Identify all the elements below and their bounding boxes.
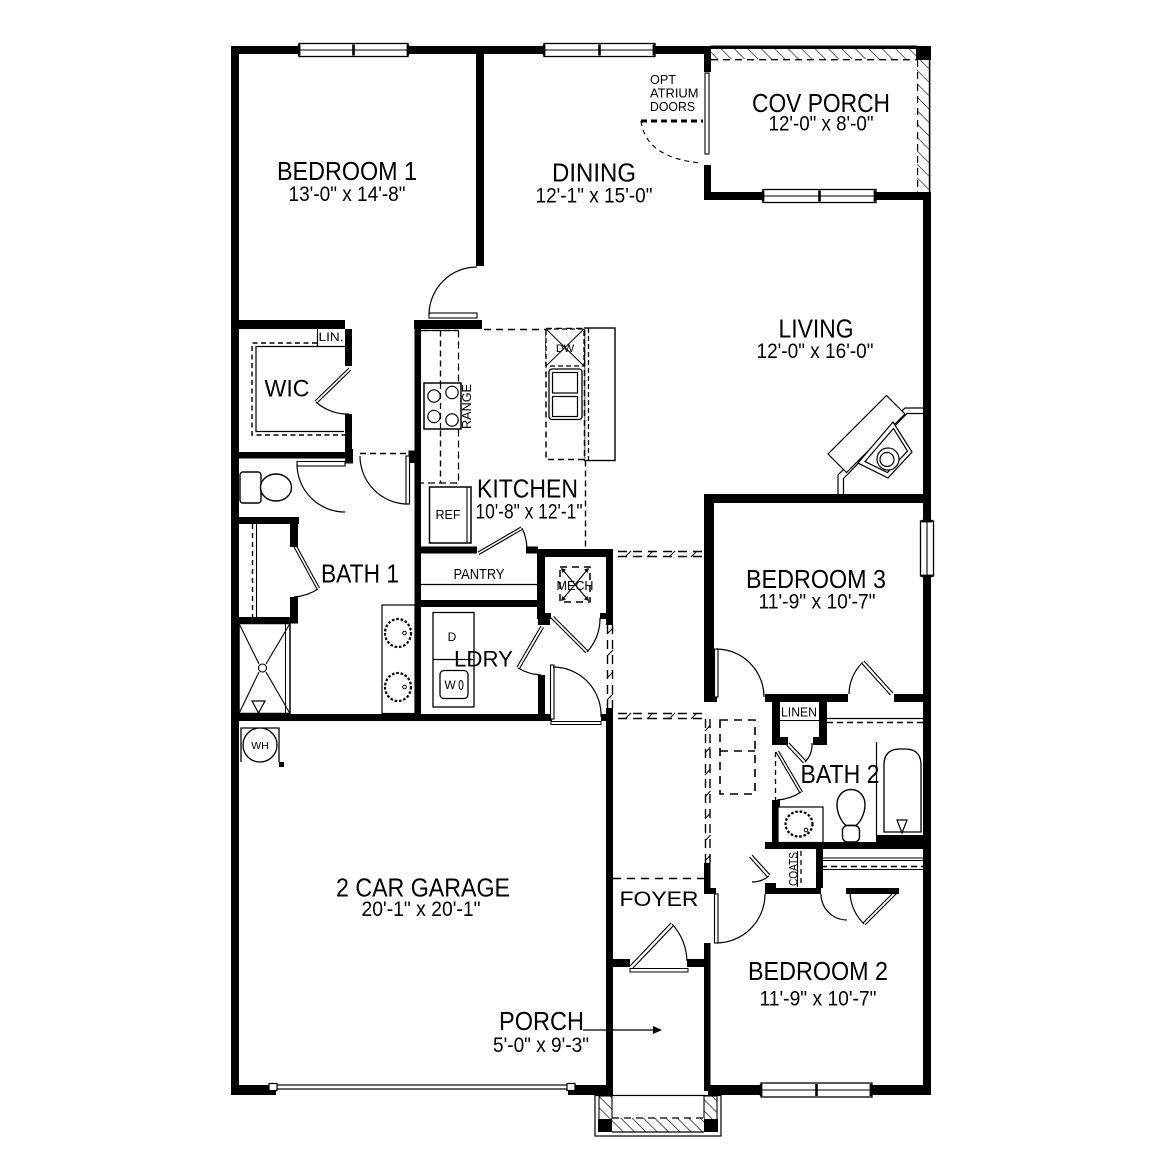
svg-text:PANTRY: PANTRY bbox=[454, 566, 505, 583]
svg-text:12'-0" x 8'-0": 12'-0" x 8'-0" bbox=[769, 112, 874, 136]
svg-text:COATS: COATS bbox=[787, 852, 801, 886]
svg-text:D: D bbox=[448, 630, 457, 644]
svg-text:PORCH: PORCH bbox=[499, 1006, 584, 1036]
svg-text:12'-0" x 16'-0": 12'-0" x 16'-0" bbox=[757, 339, 874, 363]
svg-text:20'-1" x 20'-1": 20'-1" x 20'-1" bbox=[362, 897, 481, 921]
svg-text:WH: WH bbox=[251, 740, 269, 752]
svg-text:12'-1" x 15'-0": 12'-1" x 15'-0" bbox=[536, 184, 653, 208]
svg-text:MECH: MECH bbox=[557, 579, 594, 593]
svg-text:LIN.: LIN. bbox=[319, 330, 344, 344]
svg-text:FOYER: FOYER bbox=[620, 888, 699, 911]
svg-text:10'-8" x 12'-1": 10'-8" x 12'-1" bbox=[476, 500, 583, 524]
svg-text:REF: REF bbox=[436, 508, 461, 522]
svg-text:BATH 2: BATH 2 bbox=[801, 759, 880, 789]
svg-text:DOORS: DOORS bbox=[650, 99, 695, 114]
svg-text:13'-0" x 14'-8": 13'-0" x 14'-8" bbox=[289, 182, 406, 206]
svg-text:WIC: WIC bbox=[265, 376, 310, 403]
svg-text:DW: DW bbox=[556, 343, 575, 355]
svg-text:11'-9" x 10'-7": 11'-9" x 10'-7" bbox=[759, 590, 876, 614]
svg-text:W: W bbox=[444, 678, 456, 692]
svg-text:BEDROOM 2: BEDROOM 2 bbox=[748, 956, 888, 986]
svg-text:LDRY: LDRY bbox=[454, 647, 513, 672]
svg-text:RANGE: RANGE bbox=[459, 384, 474, 429]
svg-text:5'-0" x 9'-3": 5'-0" x 9'-3" bbox=[493, 1033, 589, 1057]
svg-text:11'-9" x 10'-7": 11'-9" x 10'-7" bbox=[760, 987, 877, 1011]
svg-text:LINEN: LINEN bbox=[781, 705, 817, 720]
svg-text:BATH 1: BATH 1 bbox=[321, 559, 399, 589]
